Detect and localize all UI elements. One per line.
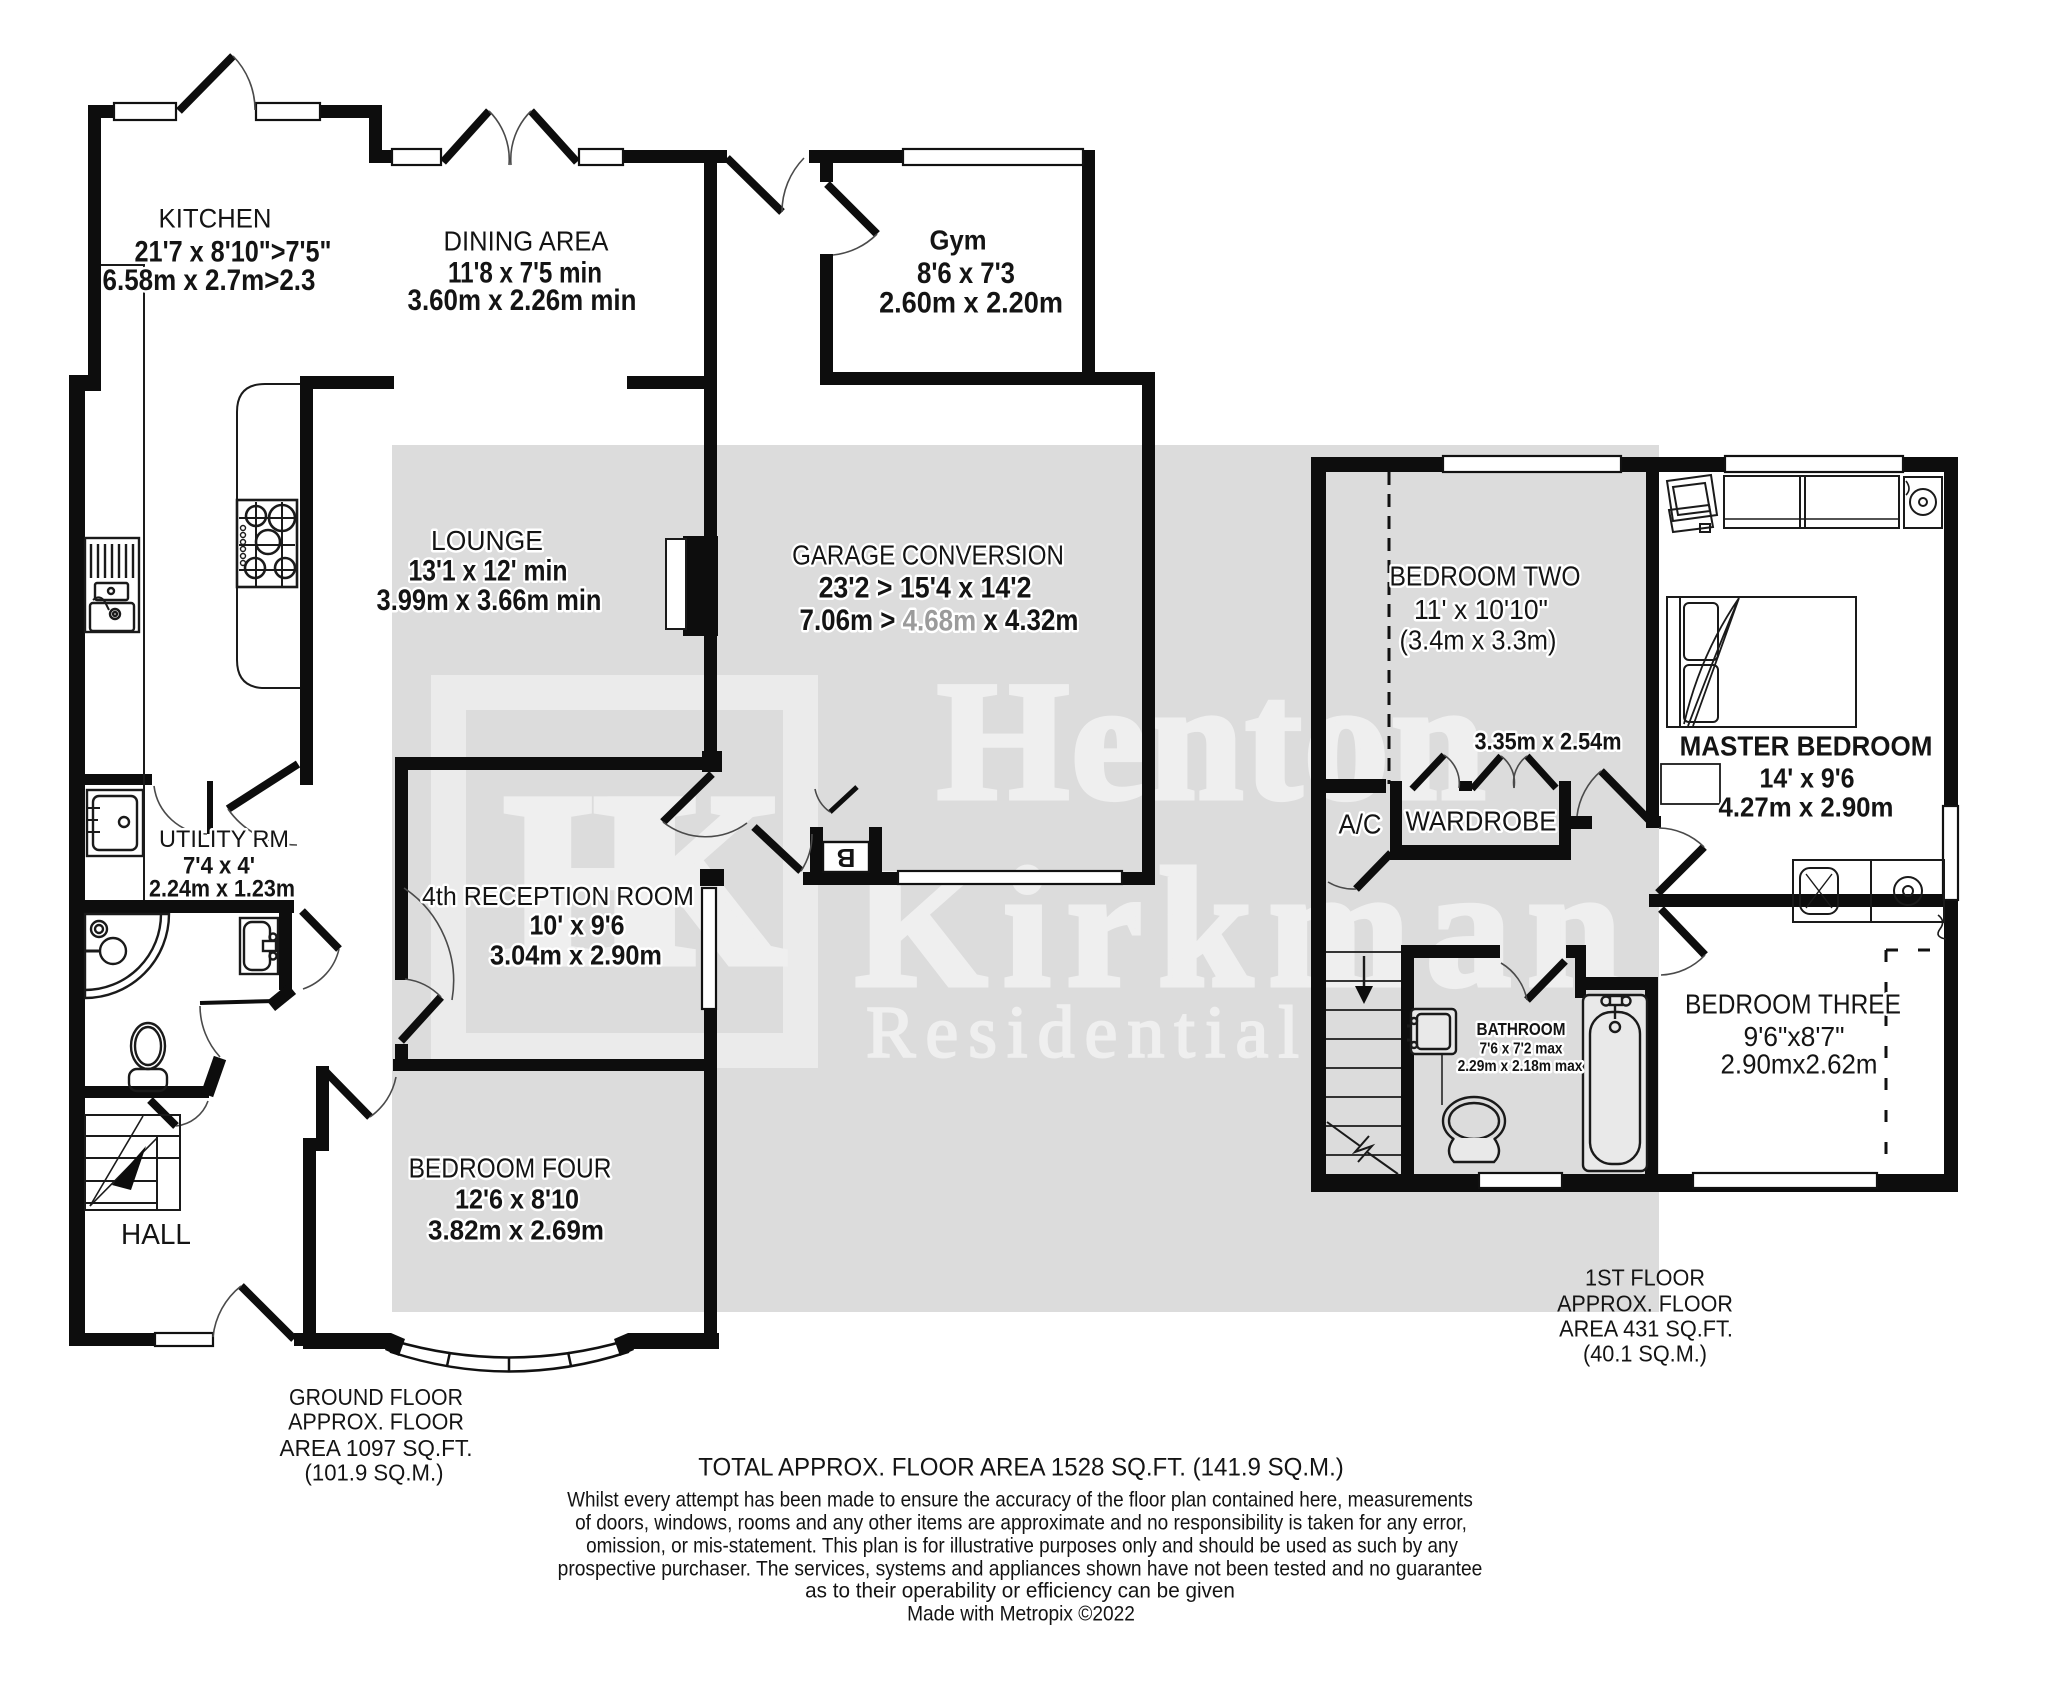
svg-text:TOTAL APPROX. FLOOR AREA 1528: TOTAL APPROX. FLOOR AREA 1528 SQ.FT. (14… — [698, 1454, 1344, 1482]
svg-text:Made with Metropix ©2022: Made with Metropix ©2022 — [907, 1603, 1135, 1626]
svg-text:UTILITY RM: UTILITY RM — [159, 827, 289, 853]
svg-text:APPROX. FLOOR: APPROX. FLOOR — [1557, 1291, 1733, 1317]
svg-text:7.06m > 4.68m x 4.32m: 7.06m > 4.68m x 4.32m — [800, 603, 1079, 636]
svg-text:omission, or mis-statement. Th: omission, or mis-statement. This plan is… — [586, 1534, 1458, 1557]
svg-text:11' x 10'10": 11' x 10'10" — [1414, 593, 1548, 625]
svg-text:AREA 431 SQ.FT.: AREA 431 SQ.FT. — [1559, 1316, 1733, 1342]
svg-text:3.99m x 3.66m min: 3.99m x 3.66m min — [377, 583, 602, 616]
svg-text:AREA 1097 SQ.FT.: AREA 1097 SQ.FT. — [280, 1435, 473, 1461]
svg-text:3.60m x 2.26m min: 3.60m x 2.26m min — [408, 283, 637, 316]
svg-text:3.04m x 2.90m: 3.04m x 2.90m — [490, 939, 662, 970]
svg-text:12'6 x 8'10: 12'6 x 8'10 — [455, 1183, 579, 1215]
svg-text:1ST FLOOR: 1ST FLOOR — [1585, 1265, 1705, 1291]
svg-text:(3.4m x 3.3m): (3.4m x 3.3m) — [1400, 624, 1557, 655]
svg-text:of doors, windows, rooms and a: of doors, windows, rooms and any other i… — [575, 1511, 1467, 1534]
svg-text:A/C: A/C — [1339, 808, 1382, 839]
svg-text:as to their operability or eff: as to their operability or efficiency ca… — [805, 1579, 1235, 1602]
svg-text:4th RECEPTION ROOM: 4th RECEPTION ROOM — [422, 883, 694, 912]
svg-text:APPROX. FLOOR: APPROX. FLOOR — [288, 1409, 464, 1435]
svg-text:GROUND FLOOR: GROUND FLOOR — [289, 1384, 463, 1410]
svg-text:HALL: HALL — [121, 1219, 191, 1252]
svg-text:3.82m x 2.69m: 3.82m x 2.69m — [428, 1214, 604, 1245]
svg-text:2.60m x 2.20m: 2.60m x 2.20m — [879, 286, 1063, 320]
svg-text:13'1 x 12' min: 13'1 x 12' min — [409, 553, 568, 587]
svg-text:(101.9 SQ.M.): (101.9 SQ.M.) — [305, 1460, 444, 1485]
svg-text:MASTER BEDROOM: MASTER BEDROOM — [1680, 730, 1933, 761]
svg-text:(40.1 SQ.M.): (40.1 SQ.M.) — [1583, 1341, 1707, 1367]
svg-text:2.24m x 1.23m: 2.24m x 1.23m — [149, 874, 295, 901]
svg-text:6.58m x 2.7m>2.3: 6.58m x 2.7m>2.3 — [103, 263, 316, 296]
svg-text:prospective purchaser. The ser: prospective purchaser. The services, sys… — [558, 1558, 1483, 1581]
svg-text:BATHROOM: BATHROOM — [1477, 1019, 1566, 1039]
svg-text:Residential: Residential — [866, 992, 1309, 1074]
svg-text:DINING AREA: DINING AREA — [444, 225, 609, 256]
svg-text:BEDROOM FOUR: BEDROOM FOUR — [409, 1152, 612, 1184]
svg-text:2.29m x 2.18m max: 2.29m x 2.18m max — [1458, 1057, 1584, 1075]
svg-text:7'6 x 7'2 max: 7'6 x 7'2 max — [1480, 1040, 1564, 1057]
svg-text:BEDROOM TWO: BEDROOM TWO — [1390, 560, 1581, 592]
svg-text:2.90mx2.62m: 2.90mx2.62m — [1721, 1048, 1878, 1079]
svg-text:B: B — [837, 843, 856, 873]
svg-text:3.35m x 2.54m: 3.35m x 2.54m — [1475, 727, 1622, 754]
svg-text:BEDROOM THREE: BEDROOM THREE — [1685, 988, 1901, 1020]
svg-text:23'2 > 15'4 x 14'2: 23'2 > 15'4 x 14'2 — [819, 571, 1032, 605]
svg-text:K: K — [594, 744, 785, 1016]
svg-text:WARDROBE: WARDROBE — [1406, 805, 1557, 836]
svg-text:KITCHEN: KITCHEN — [159, 203, 272, 234]
svg-text:4.27m x 2.90m: 4.27m x 2.90m — [1719, 791, 1894, 822]
svg-text:LOUNGE: LOUNGE — [431, 524, 543, 556]
svg-text:14' x 9'6: 14' x 9'6 — [1760, 762, 1855, 794]
svg-text:GARAGE CONVERSION: GARAGE CONVERSION — [792, 539, 1064, 571]
svg-text:10' x 9'6: 10' x 9'6 — [530, 909, 625, 941]
svg-text:9'6"x8'7": 9'6"x8'7" — [1744, 1020, 1845, 1052]
svg-text:Gym: Gym — [930, 224, 987, 255]
svg-text:8'6 x 7'3: 8'6 x 7'3 — [917, 256, 1015, 289]
svg-text:Whilst every attempt has been: Whilst every attempt has been made to en… — [567, 1488, 1473, 1511]
